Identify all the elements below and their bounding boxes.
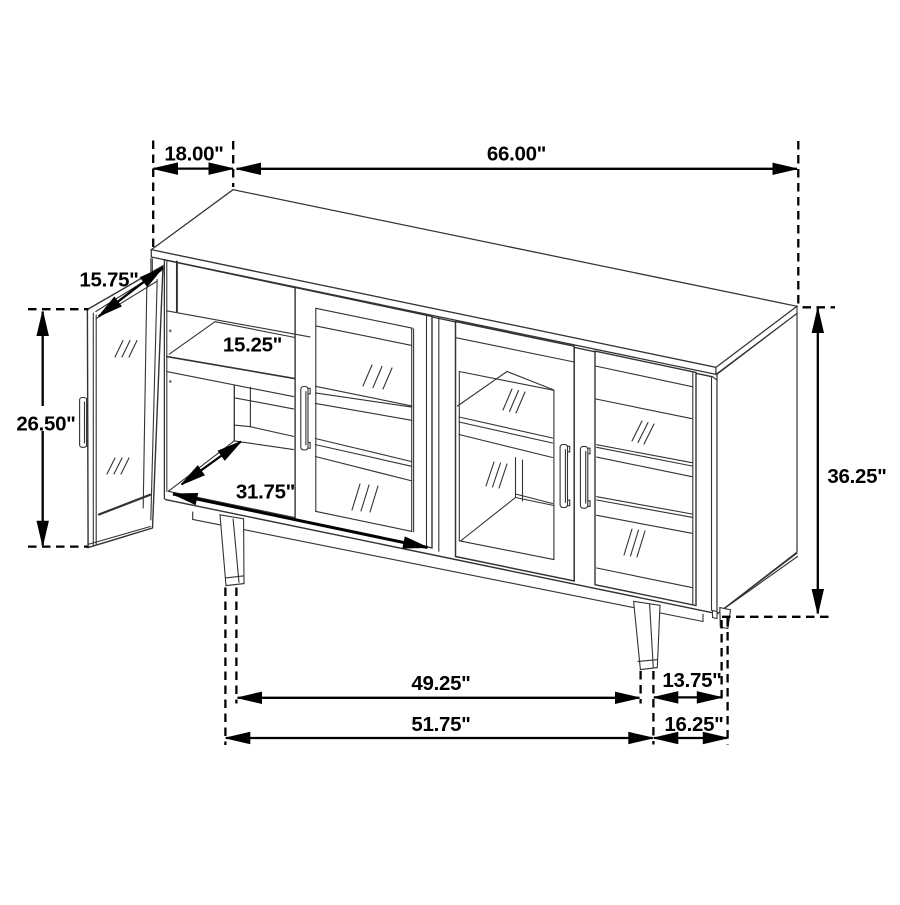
svg-text:16.25": 16.25"	[664, 713, 723, 736]
svg-text:66.00": 66.00"	[487, 143, 546, 166]
svg-text:18.00": 18.00"	[164, 143, 223, 166]
svg-text:51.75": 51.75"	[411, 713, 470, 736]
svg-text:49.25": 49.25"	[411, 672, 470, 695]
svg-text:13.75": 13.75"	[662, 669, 721, 692]
svg-text:15.25": 15.25"	[223, 334, 282, 357]
svg-text:15.75": 15.75"	[79, 269, 138, 292]
svg-text:26.50": 26.50"	[16, 413, 75, 436]
svg-text:31.75": 31.75"	[236, 481, 295, 504]
svg-text:36.25": 36.25"	[827, 465, 886, 488]
